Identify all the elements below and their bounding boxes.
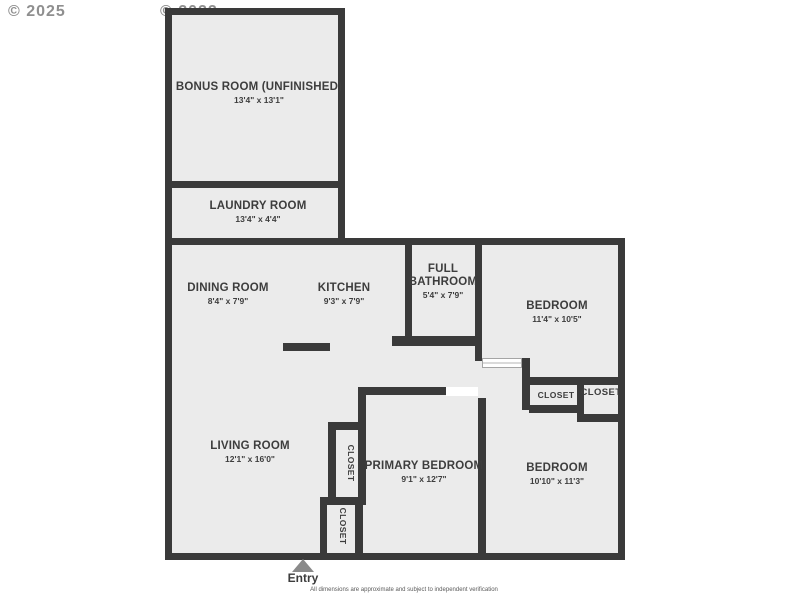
wall (618, 238, 625, 560)
room-label-bedroom2: BEDROOM 10'10" x 11'3" (526, 462, 587, 486)
wall (165, 238, 625, 245)
room-label-bonus: BONUS ROOM (UNFINISHED) 13'4" x 13'1" (176, 81, 342, 105)
room-label-laundry: LAUNDRY ROOM 13'4" x 4'4" (210, 200, 307, 224)
wall (358, 387, 366, 504)
room-name: BONUS ROOM (UNFINISHED) (176, 81, 342, 94)
copyright-watermark-2025: © 2025 (8, 3, 66, 21)
room-label-bedroom1: BEDROOM 11'4" x 10'5" (526, 300, 587, 324)
room-dims: 10'10" x 11'3" (526, 476, 587, 486)
room-name: FULL BATHROOM (403, 263, 483, 289)
room-name: KITCHEN (318, 282, 371, 295)
room-dims: 13'4" x 13'1" (176, 95, 342, 105)
wall (165, 8, 345, 15)
wall (529, 405, 584, 413)
wall (392, 336, 482, 346)
room-name: LAUNDRY ROOM (210, 200, 307, 213)
wall (328, 422, 336, 504)
room-dims: 9'1" x 12'7" (365, 474, 484, 484)
door-opening (446, 387, 478, 396)
room-dims: 5'4" x 7'9" (403, 290, 483, 300)
room-name: PRIMARY BEDROOM (365, 460, 484, 473)
room-label-kitchen: KITCHEN 9'3" x 7'9" (318, 282, 371, 306)
wall (320, 497, 327, 560)
wall (338, 8, 345, 245)
room-name: BEDROOM (526, 300, 587, 313)
wall (165, 8, 172, 560)
wall (283, 343, 330, 351)
disclaimer-text: All dimensions are approximate and subje… (310, 587, 498, 593)
closet-label-hall: CLOSET (538, 390, 575, 400)
room-label-living: LIVING ROOM 12'1" x 16'0" (210, 440, 290, 464)
room-label-dining: DINING ROOM 8'4" x 7'9" (187, 282, 268, 306)
room-name: BEDROOM (526, 462, 587, 475)
room-name: DINING ROOM (187, 282, 268, 295)
wall (165, 181, 345, 188)
wall (475, 240, 482, 361)
window (482, 358, 522, 368)
floor-plan: © 2025 © 2022 BONUS ROOM (UNFINISHED) 13… (0, 0, 800, 600)
wall (355, 497, 363, 560)
closet-label-hall2: CLOSET (581, 387, 622, 398)
closet-label-entry: CLOSET (338, 508, 348, 545)
wall (577, 414, 625, 422)
room-dims: 8'4" x 7'9" (187, 296, 268, 306)
entry-label: Entry (288, 571, 319, 585)
room-dims: 11'4" x 10'5" (526, 314, 587, 324)
wall (522, 377, 625, 385)
room-dims: 9'3" x 7'9" (318, 296, 371, 306)
wall (358, 387, 446, 395)
wall (165, 553, 625, 560)
room-name: LIVING ROOM (210, 440, 290, 453)
room-dims: 12'1" x 16'0" (210, 454, 290, 464)
closet-label-mid: CLOSET (346, 445, 356, 482)
room-label-bathroom: FULL BATHROOM 5'4" x 7'9" (403, 263, 483, 300)
room-label-primary: PRIMARY BEDROOM 9'1" x 12'7" (365, 460, 484, 484)
room-dims: 13'4" x 4'4" (210, 214, 307, 224)
